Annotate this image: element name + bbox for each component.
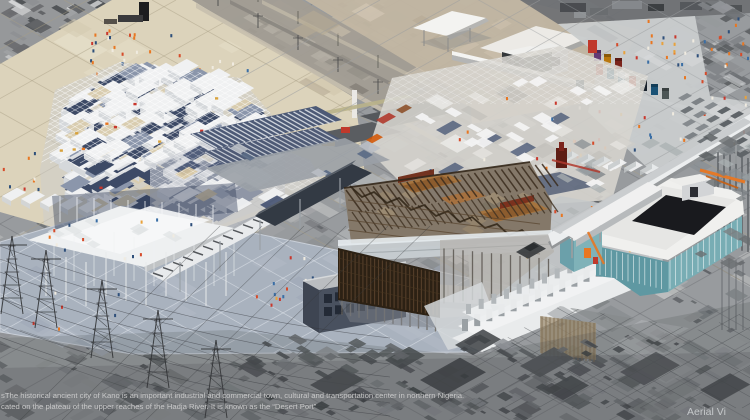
svg-text:sThe historical ancient city o: sThe historical ancient city of Kano is …: [1, 391, 464, 400]
svg-text:Aerial Vi: Aerial Vi: [687, 406, 726, 418]
svg-text:cated on the plateau of the up: cated on the plateau of the upper reache…: [1, 402, 317, 411]
